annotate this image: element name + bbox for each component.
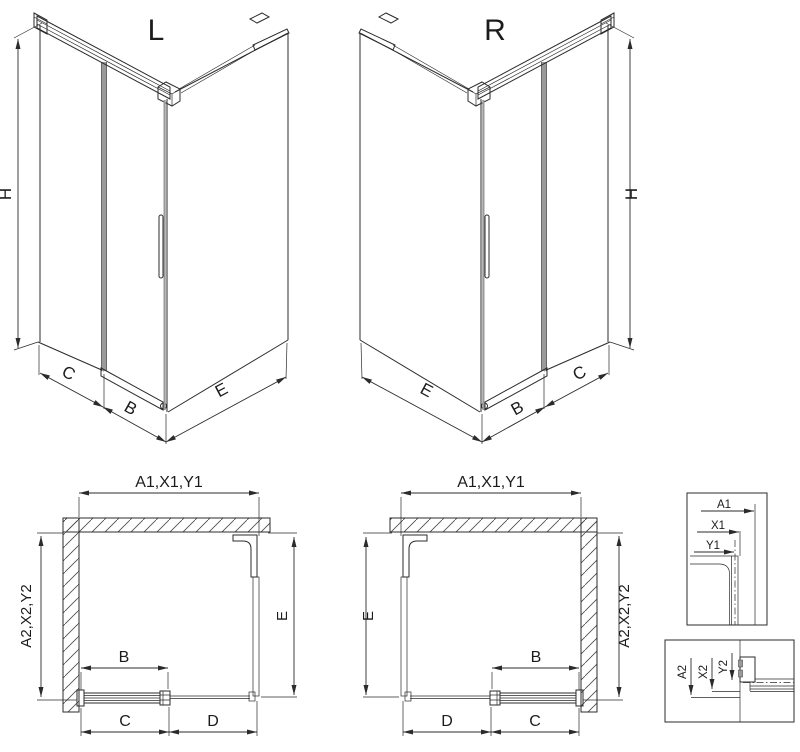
detail-label-a2: A2 (677, 665, 689, 679)
iso-view-right: R H E B C (359, 13, 641, 444)
view-title-left: L (148, 14, 165, 47)
dim-label-d-plan-right: D (441, 713, 453, 730)
wall-side-left-plan (63, 518, 79, 712)
dim-label-e-left: E (212, 379, 231, 401)
plan-view-right: A1,X1,Y1 A2,X2,Y2 E B D C (360, 474, 633, 736)
wall-top-right-plan (390, 518, 597, 532)
dim-label-b-left: B (121, 397, 140, 419)
dim-label-b-plan-left: B (119, 649, 130, 666)
view-title-right: R (484, 14, 506, 47)
dim-label-c-right: C (570, 362, 590, 385)
dim-label-a1-plan-right: A1,X1,Y1 (457, 474, 525, 491)
dim-label-c-left: C (59, 362, 79, 385)
dim-label-c-plan-right: C (529, 713, 541, 730)
detail-label-a1: A1 (717, 499, 731, 511)
detail-label-y2: Y2 (718, 660, 730, 674)
dim-label-b-right: B (508, 397, 527, 419)
iso-view-left: L H C B E (0, 13, 289, 444)
drawing-sheet: L H C B E R H E B C A1,X1,Y1 A2,X2,Y2 E … (0, 0, 800, 752)
detail-view-top: A1 X1 Y1 (687, 493, 767, 625)
detail-label-x2: X2 (698, 665, 710, 679)
dim-label-d-plan-left: D (207, 713, 219, 730)
dim-label-b-plan-right: B (531, 649, 542, 666)
wall-side-right-plan (581, 518, 597, 712)
dim-label-height-right: H (622, 188, 641, 200)
detail-label-x1: X1 (711, 520, 725, 532)
wall-top-left-plan (63, 518, 270, 532)
dim-label-height-left: H (0, 188, 15, 200)
dim-label-a2-plan-left: A2,X2,Y2 (18, 584, 35, 647)
dim-label-a1-plan-left: A1,X1,Y1 (135, 474, 203, 491)
detail-view-bottom: A2 X2 Y2 (665, 640, 794, 722)
dim-label-e-plan-left: E (274, 611, 291, 621)
detail-label-y1: Y1 (706, 540, 720, 552)
dim-label-e-plan-right: E (360, 611, 377, 621)
dim-label-c-plan-left: C (119, 713, 131, 730)
dim-label-e-right: E (417, 379, 436, 401)
dim-label-a2-plan-right: A2,X2,Y2 (616, 584, 633, 647)
plan-view-left: A1,X1,Y1 A2,X2,Y2 E B C D (18, 474, 297, 736)
